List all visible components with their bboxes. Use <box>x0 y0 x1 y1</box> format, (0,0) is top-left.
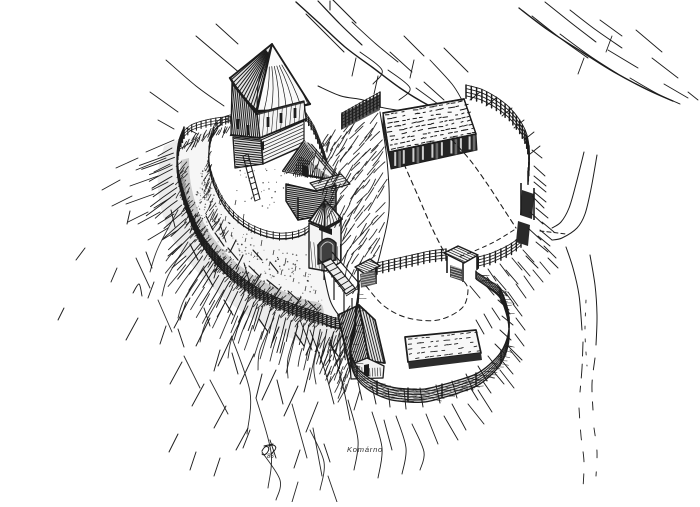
svg-text:Komárno: Komárno <box>347 445 383 454</box>
svg-text:86: 86 <box>267 454 274 460</box>
